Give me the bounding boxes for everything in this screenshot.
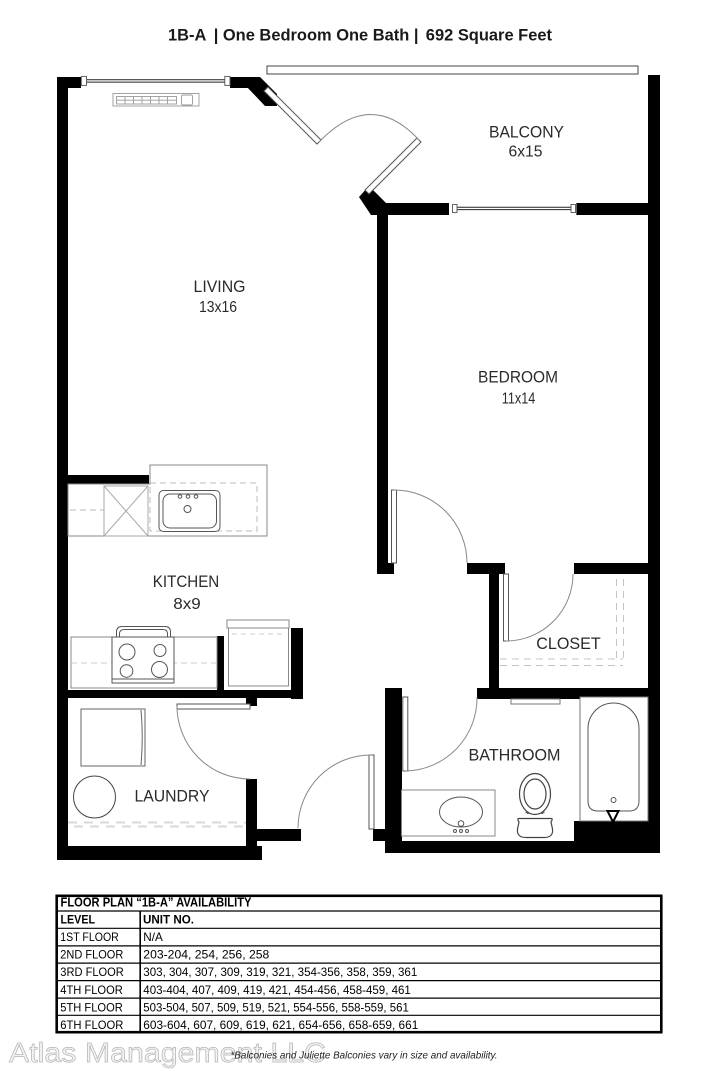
svg-text:303, 304, 307, 309, 319, 321,: 303, 304, 307, 309, 319, 321, 354-356, 3… <box>143 965 417 979</box>
svg-text:LIVING: LIVING <box>194 278 246 296</box>
svg-text:BATHROOM: BATHROOM <box>469 747 561 765</box>
svg-text:5TH FLOOR: 5TH FLOOR <box>60 1000 123 1014</box>
svg-text:2ND FLOOR: 2ND FLOOR <box>60 947 123 961</box>
svg-text:4TH FLOOR: 4TH FLOOR <box>60 983 123 997</box>
svg-text:LAUNDRY: LAUNDRY <box>135 788 210 806</box>
svg-text:13x16: 13x16 <box>199 299 237 316</box>
svg-text:KITCHEN: KITCHEN <box>153 573 220 591</box>
svg-text:1B-A | One Bedroom One Bath |: 1B-A | One Bedroom One Bath | 692 Square… <box>168 27 552 45</box>
svg-text:203-204, 254, 256, 258: 203-204, 254, 256, 258 <box>143 947 269 961</box>
svg-text:BALCONY: BALCONY <box>489 123 564 141</box>
svg-text:603-604, 607, 609, 619, 621, 6: 603-604, 607, 609, 619, 621, 654-656, 65… <box>143 1018 418 1032</box>
svg-text:*Balconies and Juliette Balcon: *Balconies and Juliette Balconies vary i… <box>231 1051 498 1062</box>
svg-text:3RD FLOOR: 3RD FLOOR <box>60 965 124 979</box>
svg-text:BEDROOM: BEDROOM <box>478 369 558 387</box>
svg-text:1ST FLOOR: 1ST FLOOR <box>60 930 119 944</box>
svg-text:FLOOR PLAN “1B-A” AVAILABILITY: FLOOR PLAN “1B-A” AVAILABILITY <box>61 895 253 909</box>
svg-text:403-404, 407, 409, 419, 421, 4: 403-404, 407, 409, 419, 421, 454-456, 45… <box>143 983 411 997</box>
svg-text:CLOSET: CLOSET <box>536 635 601 653</box>
svg-text:6TH FLOOR: 6TH FLOOR <box>60 1018 123 1032</box>
svg-text:8x9: 8x9 <box>173 596 201 613</box>
svg-text:6x15: 6x15 <box>509 144 543 161</box>
svg-text:LEVEL: LEVEL <box>61 913 96 927</box>
svg-text:UNIT NO.: UNIT NO. <box>143 913 194 927</box>
svg-text:11x14: 11x14 <box>502 390 536 407</box>
svg-text:N/A: N/A <box>143 930 163 944</box>
svg-text:503-504, 507, 509, 519, 521, 5: 503-504, 507, 509, 519, 521, 554-556, 55… <box>143 1000 409 1014</box>
